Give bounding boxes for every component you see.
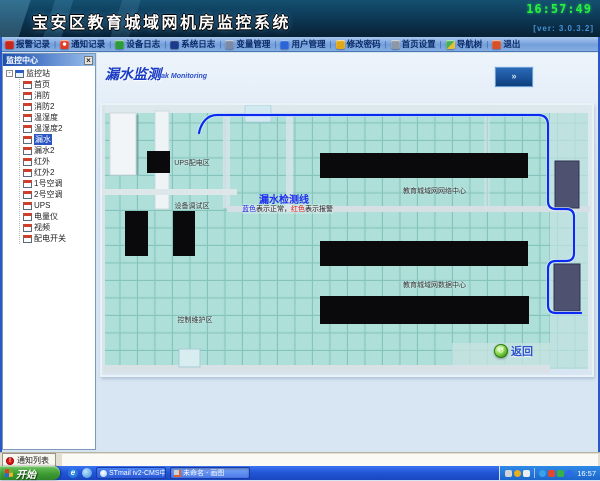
sidebar-item-ac1[interactable]: 1号空调 <box>23 178 95 189</box>
system-log-button[interactable]: 系统日志 <box>170 38 215 50</box>
antivirus-shield-icon[interactable] <box>557 470 564 477</box>
version-label: [ver: 3.0.3.2] <box>533 24 594 33</box>
volume-icon[interactable] <box>523 470 530 477</box>
variable-mgmt-icon <box>225 40 234 49</box>
toolbar-separator: | <box>385 40 387 49</box>
form-icon <box>23 114 32 122</box>
toolbar-separator: | <box>54 40 56 49</box>
legend-red-term: 红色 <box>291 206 305 213</box>
zone-label-network-center: 教育城域网网络中心 <box>392 186 477 196</box>
system-log-icon <box>170 40 179 49</box>
ie-icon[interactable]: e <box>68 468 78 478</box>
notice-records-icon <box>60 40 69 49</box>
task-button-paint[interactable]: 未命名 - 画图 <box>170 467 250 479</box>
sidebar-item-leak[interactable]: 漏水 <box>23 134 95 145</box>
floorplan-graphic <box>102 105 592 375</box>
main-content: 漏水监测 Leak Monitoring » <box>97 53 598 452</box>
form-icon <box>23 202 32 210</box>
toolbar-separator: | <box>109 40 111 49</box>
change-password-icon <box>336 40 345 49</box>
zone-label-data-center: 教育城域网数据中心 <box>392 280 477 290</box>
device-log-icon <box>115 40 124 49</box>
sidebar-item-fire2[interactable]: 消防2 <box>23 101 95 112</box>
alarm-tray-icon[interactable] <box>548 470 555 477</box>
start-button[interactable]: 开始 <box>0 466 60 480</box>
zone-label-debug: 设备调试区 <box>162 201 222 211</box>
form-icon <box>23 147 32 155</box>
sidebar-item-temp-humidity[interactable]: 温湿度 <box>23 112 95 123</box>
leak-legend: 蓝色表示正常，红色表示报警 <box>242 204 333 214</box>
sidebar-item-infrared[interactable]: 红外 <box>23 156 95 167</box>
main-toolbar: 报警记录 | 通知记录 | 设备日志 | 系统日志 | 变量管理 | 用户管理 … <box>0 37 600 52</box>
sidebar-item-leak2[interactable]: 漏水2 <box>23 145 95 156</box>
toolbar-separator: | <box>164 40 166 49</box>
digital-clock: 16:57:49 <box>526 2 592 16</box>
back-button-label: 返回 <box>511 343 533 359</box>
zone-label-ups: UPS配电区 <box>162 158 222 168</box>
user-mgmt-button[interactable]: 用户管理 <box>280 38 325 50</box>
sidebar-title: 监控中心 <box>6 55 38 66</box>
homepage-settings-button[interactable]: 首页设置 <box>391 38 436 50</box>
stmail-icon <box>100 470 107 477</box>
task-label: STmail iv2-CMS中... <box>109 468 166 478</box>
page-subtitle: Leak Monitoring <box>153 73 207 80</box>
nav-tree-button[interactable]: 导航树 <box>446 38 483 50</box>
form-icon <box>23 158 32 166</box>
monitor-tree: - 监控站 首页 消防 消防2 温湿度 温湿度2 漏水 漏水2 红外 红外2 1… <box>3 66 95 244</box>
network-status-icon[interactable] <box>539 470 546 477</box>
alarm-records-icon <box>5 40 14 49</box>
variable-mgmt-button[interactable]: 变量管理 <box>225 38 270 50</box>
form-icon <box>23 191 32 199</box>
sidebar-item-ac2[interactable]: 2号空调 <box>23 189 95 200</box>
nav-tree-icon <box>446 40 455 49</box>
windows-flag-icon <box>5 469 13 478</box>
sidebar-item-power-meter[interactable]: 电量仪 <box>23 211 95 222</box>
system-tray: 16:57 <box>499 466 600 480</box>
form-icon <box>23 103 32 111</box>
exit-button[interactable]: 退出 <box>492 38 520 50</box>
start-label: 开始 <box>16 466 36 481</box>
change-password-button[interactable]: 修改密码 <box>336 38 381 50</box>
task-button-stmail[interactable]: STmail iv2-CMS中... <box>96 467 166 479</box>
notice-records-button[interactable]: 通知记录 <box>60 38 105 50</box>
collapse-icon[interactable]: - <box>6 70 13 77</box>
toolbar-separator: | <box>219 40 221 49</box>
paint-icon <box>174 470 181 477</box>
app-title: 宝安区教育城域网机房监控系统 <box>32 9 291 33</box>
leak-floorplan: UPS配电区 设备调试区 控制维护区 教育城域网网络中心 教育城域网数据中心 漏… <box>100 103 594 377</box>
sidebar-item-temp-humidity2[interactable]: 温湿度2 <box>23 123 95 134</box>
windows-taskbar: 开始 e STmail iv2-CMS中... 未命名 - 画图 16:57 <box>0 466 600 480</box>
close-icon[interactable]: × <box>84 56 93 65</box>
exit-icon <box>492 40 501 49</box>
tree-root-station[interactable]: - 监控站 <box>6 68 95 79</box>
show-desktop-icon[interactable] <box>82 468 92 478</box>
zone-label-control: 控制维护区 <box>160 315 230 325</box>
legend-blue-term: 蓝色 <box>242 206 256 213</box>
tray-divider <box>534 468 535 478</box>
printer-icon[interactable] <box>505 470 512 477</box>
toolbar-separator: | <box>486 40 488 49</box>
back-orb-icon: ↺ <box>494 344 508 358</box>
device-log-button[interactable]: 设备日志 <box>115 38 160 50</box>
alarm-records-button[interactable]: 报警记录 <box>5 38 50 50</box>
notify-tab-label: 通知列表 <box>17 455 49 466</box>
toolbar-separator: | <box>274 40 276 49</box>
sidebar-header: 监控中心 × <box>3 54 95 66</box>
homepage-settings-icon <box>391 40 400 49</box>
sidebar-item-fire[interactable]: 消防 <box>23 90 95 101</box>
form-icon <box>23 180 32 188</box>
sidebar-item-home[interactable]: 首页 <box>23 79 95 90</box>
form-icon <box>23 235 32 243</box>
form-icon <box>23 169 32 177</box>
dock-status-row: ! 通知列表 <box>0 452 600 466</box>
sidebar-item-ups[interactable]: UPS <box>23 200 95 211</box>
toolbar-separator: | <box>329 40 331 49</box>
monitor-center-panel: 监控中心 × - 监控站 首页 消防 消防2 温湿度 温湿度2 漏水 漏水2 红… <box>2 53 96 450</box>
form-icon <box>23 81 32 89</box>
form-icon <box>23 224 32 232</box>
sidebar-item-power-switch[interactable]: 配电开关 <box>23 233 95 244</box>
status-fill <box>62 454 598 466</box>
task-label: 未命名 - 画图 <box>183 468 224 478</box>
form-icon <box>23 213 32 221</box>
app-titlebar: 宝安区教育城域网机房监控系统 16:57:49 [ver: 3.0.3.2] <box>0 0 600 37</box>
form-icon <box>23 125 32 133</box>
toolbar-separator: | <box>440 40 442 49</box>
alert-icon: ! <box>6 457 14 465</box>
update-icon[interactable] <box>514 470 521 477</box>
user-mgmt-icon <box>280 40 289 49</box>
messenger-icon[interactable] <box>566 470 573 477</box>
expand-panel-button[interactable]: » <box>495 67 533 87</box>
form-icon <box>23 92 32 100</box>
form-icon <box>23 136 32 144</box>
tray-clock: 16:57 <box>577 469 596 478</box>
back-button[interactable]: ↺ 返回 <box>494 343 533 359</box>
station-icon <box>15 70 24 78</box>
sidebar-item-video[interactable]: 视频 <box>23 222 95 233</box>
sidebar-item-infrared2[interactable]: 红外2 <box>23 167 95 178</box>
